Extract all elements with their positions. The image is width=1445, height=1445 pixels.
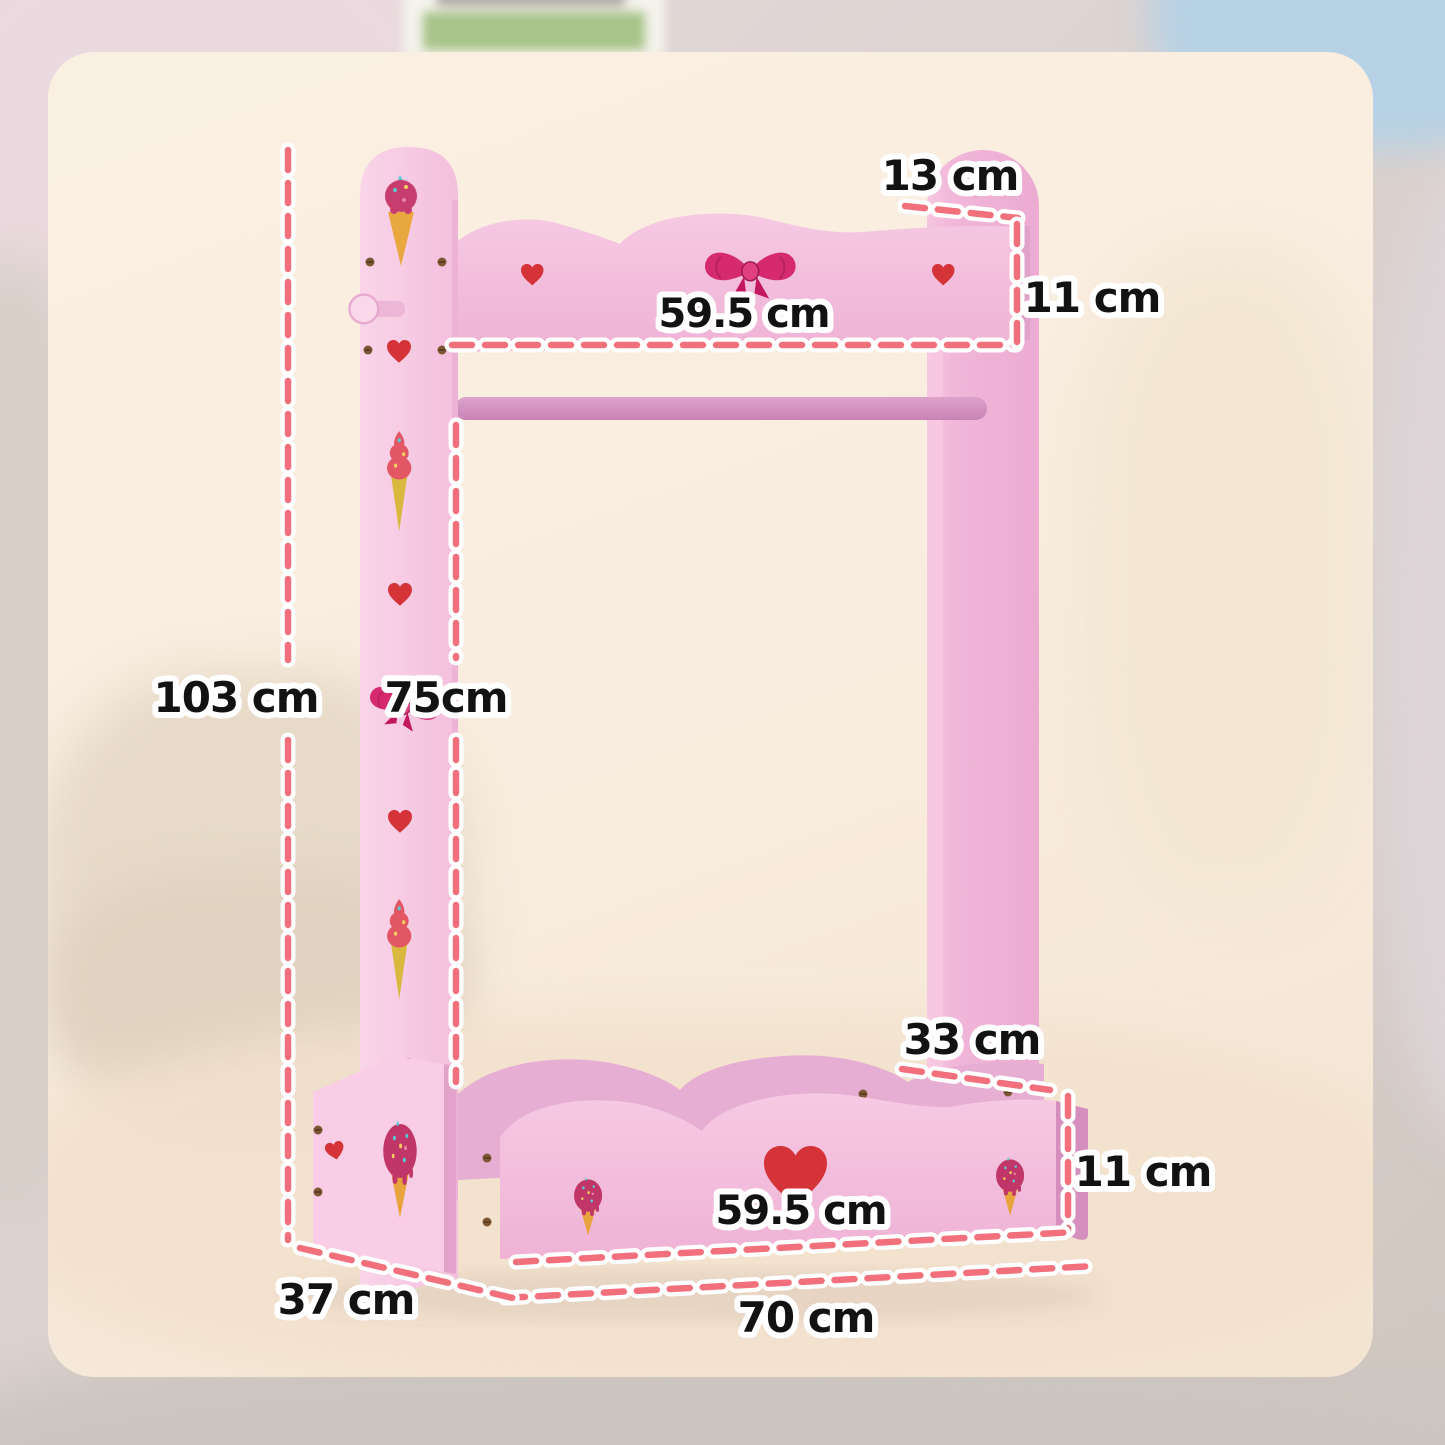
label-base-width: 59.5 cm xyxy=(715,1188,886,1234)
label-overall-width: 70 cm xyxy=(738,1293,875,1342)
base-side-panel-edge xyxy=(444,1064,456,1274)
label-overall-depth: 37 cm xyxy=(278,1275,415,1324)
hanging-rod xyxy=(455,397,987,420)
product-image: 103 cm 75cm 13 cm 11 cm 59.5 cm 33 cm 11… xyxy=(0,0,1445,1445)
label-top-shelf-width: 59.5 cm xyxy=(658,291,829,337)
label-base-depth: 33 cm xyxy=(904,1015,1041,1064)
screw-icon xyxy=(364,346,373,355)
label-base-side-height: 11 cm xyxy=(1075,1147,1212,1196)
label-top-shelf-side-height: 11 cm xyxy=(1024,273,1161,322)
label-top-shelf-depth: 13 cm xyxy=(882,151,1019,200)
screw-icon xyxy=(314,1188,323,1197)
label-inner-height: 75cm xyxy=(384,673,507,722)
base-side-panel xyxy=(313,1056,456,1274)
dimension-diagram: 103 cm 75cm 13 cm 11 cm 59.5 cm 33 cm 11… xyxy=(0,0,1445,1445)
label-total-height: 103 cm xyxy=(154,673,319,722)
screw-icon xyxy=(483,1154,492,1163)
screw-icon xyxy=(314,1126,323,1135)
right-post-front-edge xyxy=(927,236,943,1072)
screw-icon xyxy=(438,258,447,267)
screw-icon xyxy=(366,258,375,267)
screw-icon xyxy=(483,1218,492,1227)
